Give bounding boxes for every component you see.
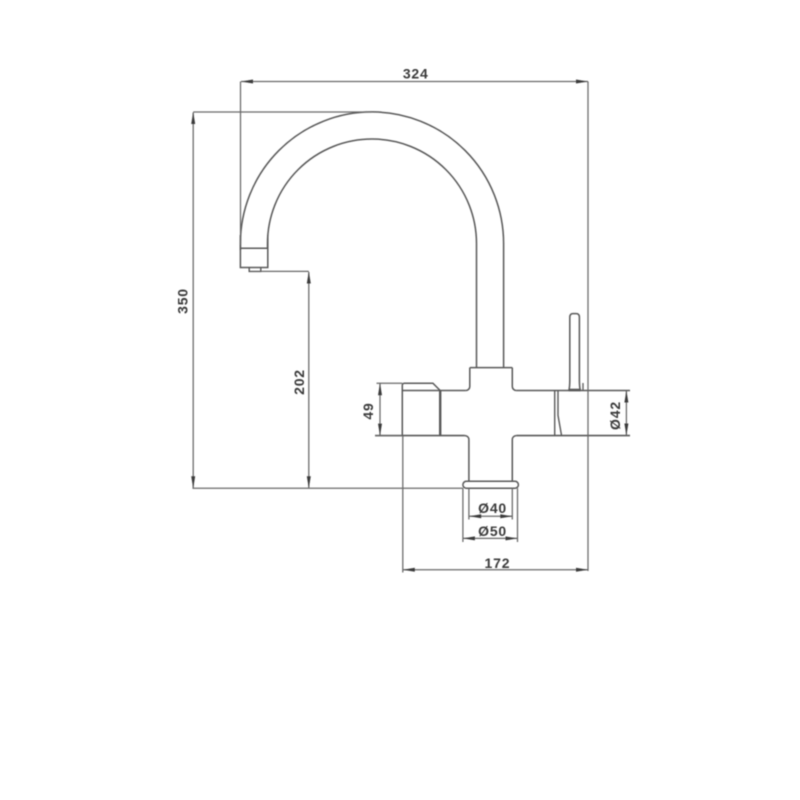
svg-text:Ø50: Ø50 bbox=[478, 523, 507, 539]
svg-text:324: 324 bbox=[403, 66, 429, 82]
svg-text:350: 350 bbox=[175, 288, 191, 314]
svg-text:Ø40: Ø40 bbox=[478, 500, 507, 516]
svg-text:Ø42: Ø42 bbox=[607, 401, 623, 430]
svg-text:172: 172 bbox=[485, 555, 511, 571]
svg-text:202: 202 bbox=[291, 369, 307, 395]
svg-text:49: 49 bbox=[360, 402, 376, 419]
